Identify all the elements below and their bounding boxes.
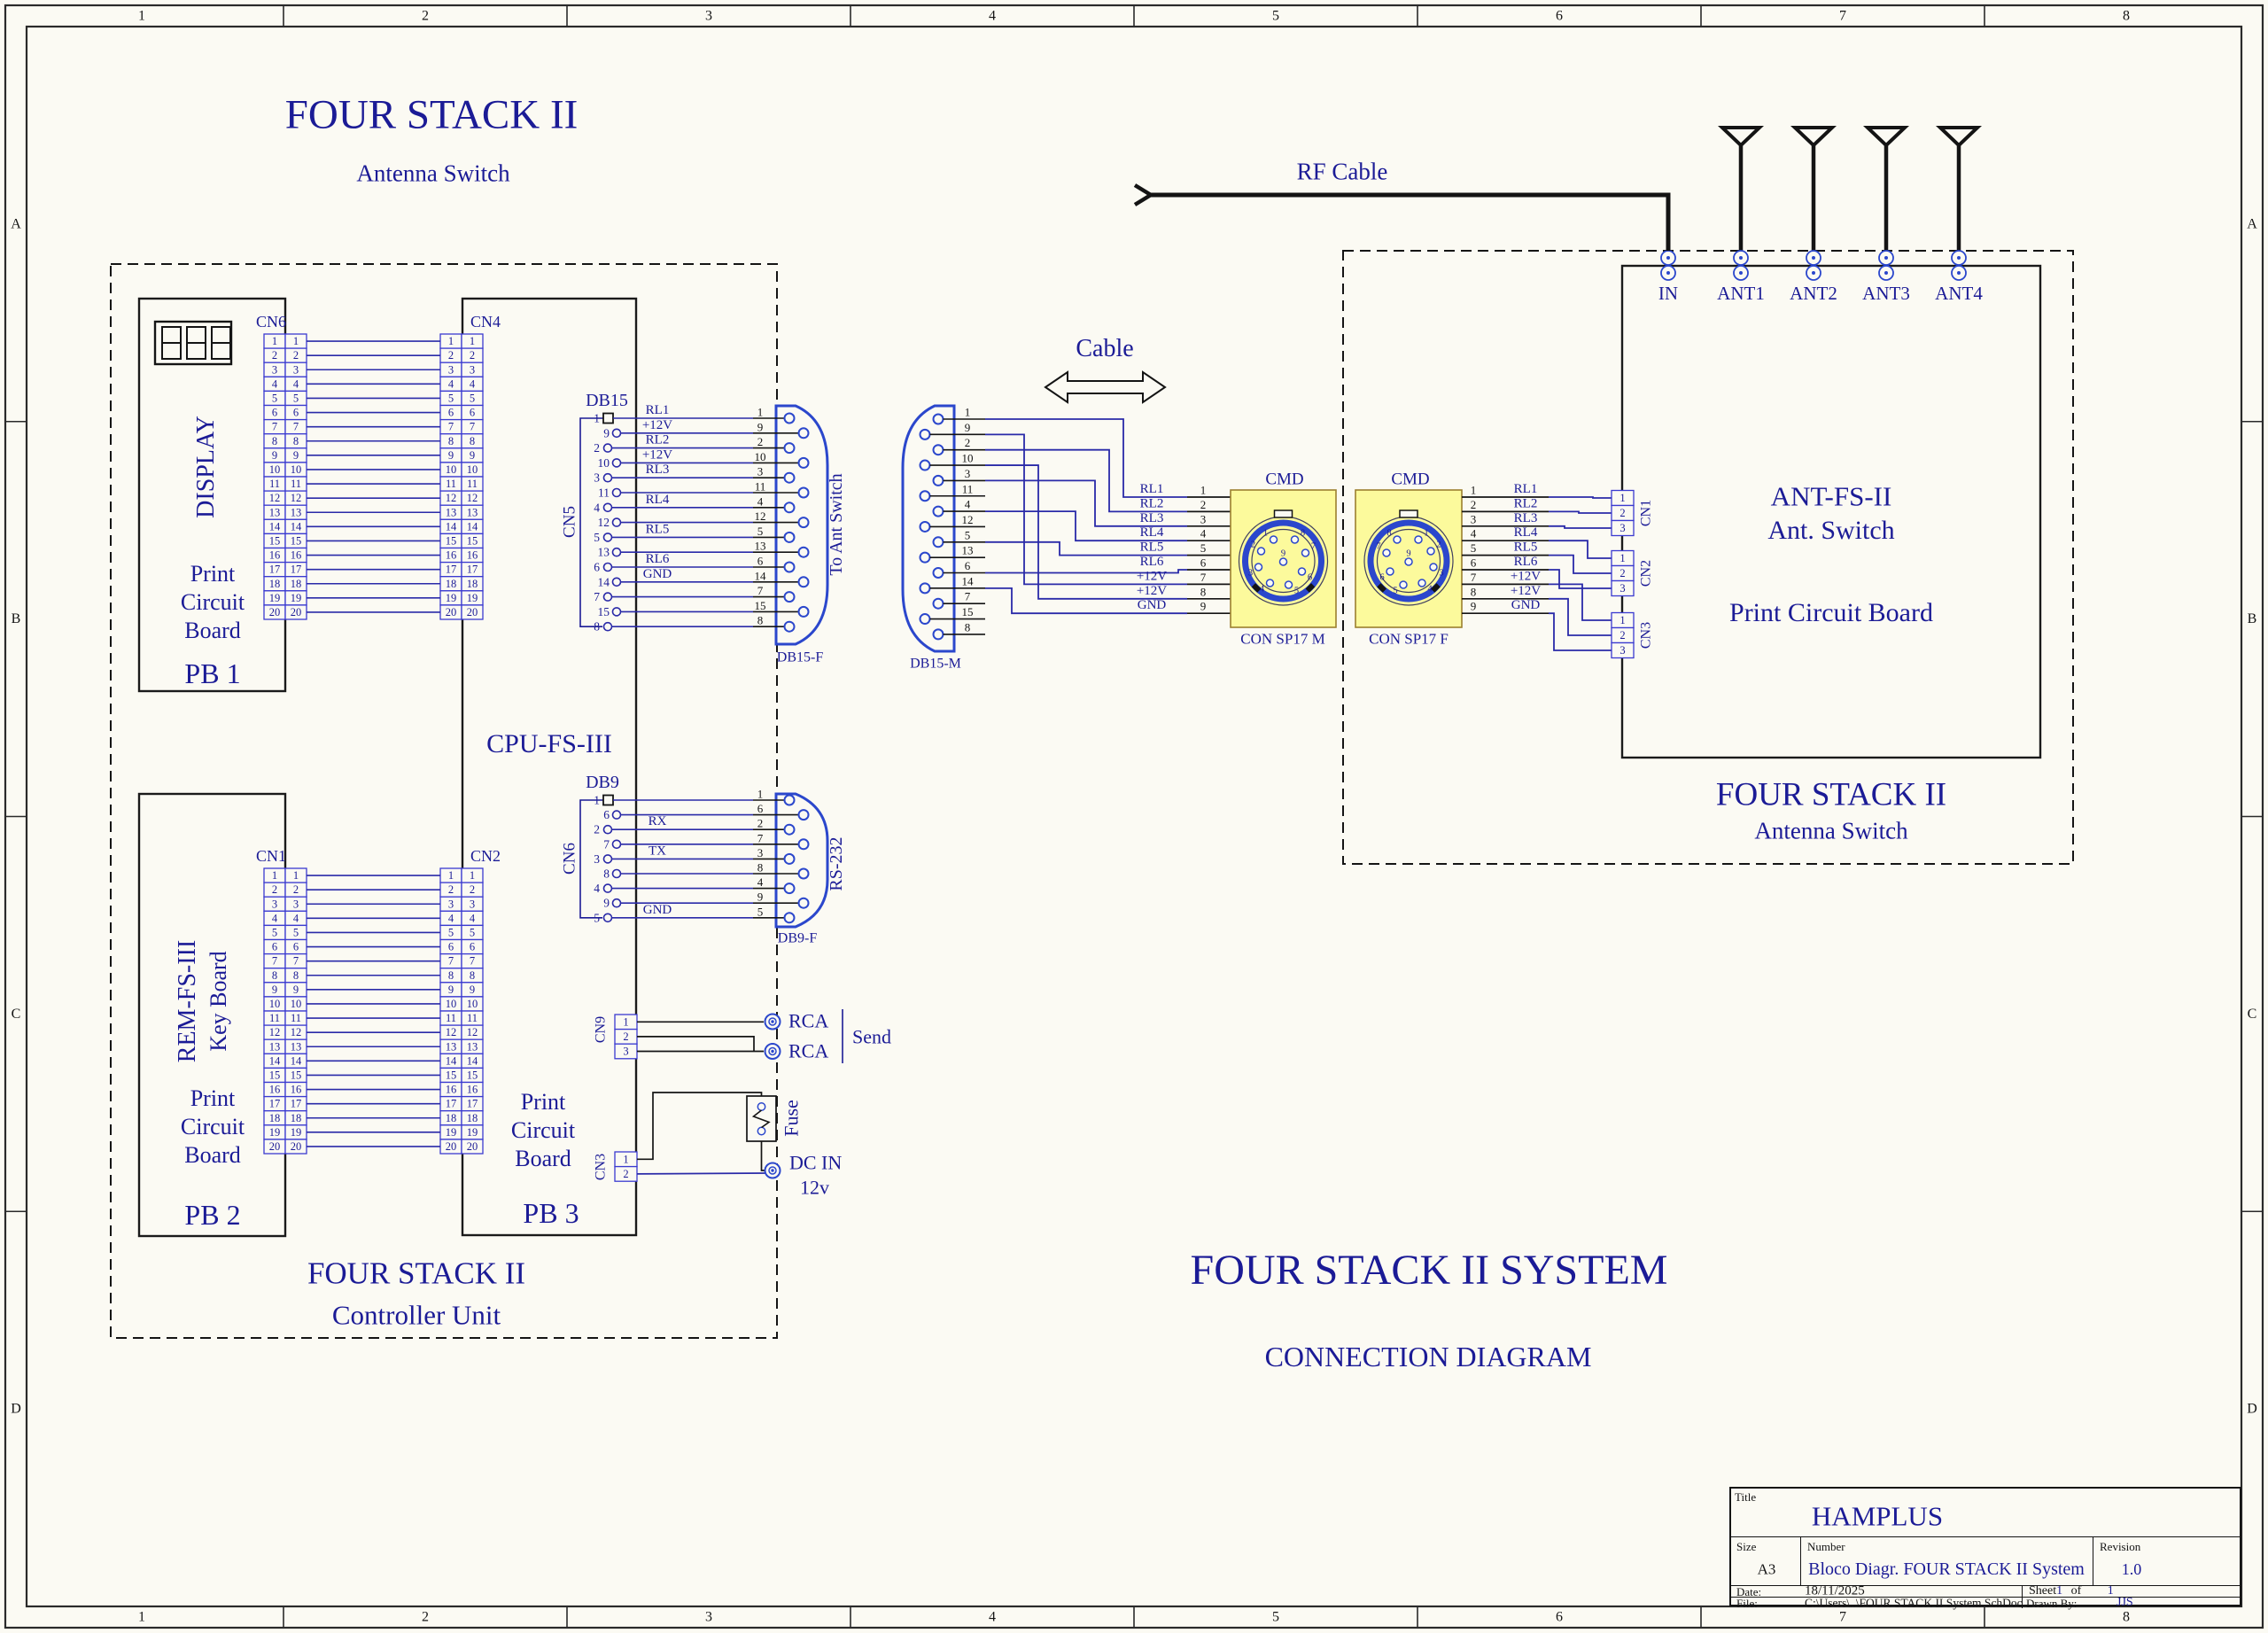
connector-label: CN6	[561, 843, 579, 875]
ant-board-pcb-label: Print Circuit Board	[1729, 600, 1933, 626]
pin-number: 1	[1471, 484, 1477, 497]
pin-number: 19	[446, 592, 457, 604]
pin-number: 1	[757, 788, 764, 801]
system-title: FOUR STACK II SYSTEM	[1191, 1249, 1668, 1292]
pin-number: 2	[293, 349, 299, 362]
sp17-pin-number: 3	[1439, 569, 1443, 579]
sp17-f-notch	[1400, 510, 1417, 517]
pin-number: 2	[1619, 507, 1625, 519]
pin-number: 18	[467, 1112, 478, 1124]
connector-label: CN3	[1639, 622, 1654, 649]
dsub-pin	[934, 537, 944, 547]
dc-in-jack	[772, 1170, 773, 1171]
pin-number: 14	[467, 1054, 478, 1067]
pin-circle	[613, 608, 621, 616]
pin-number: 7	[965, 590, 971, 603]
frame-column-label: 7	[1839, 1610, 1846, 1625]
pin-number: 12	[467, 492, 478, 504]
sp17-pin-number: 6	[1379, 573, 1384, 583]
pin-number: 12	[291, 492, 302, 504]
pin-number: 11	[446, 478, 456, 490]
terminal-label: ANT3	[1862, 283, 1910, 304]
pin-number: 6	[757, 555, 764, 568]
dsub-pin	[920, 461, 930, 470]
pin-number: 17	[291, 1098, 302, 1110]
pin-number: 1	[293, 335, 299, 347]
file-label: File:	[1736, 1597, 1758, 1611]
rca-label: RCA	[788, 1040, 828, 1062]
pin-number: 17	[269, 1098, 281, 1110]
pin-number: 7	[603, 837, 610, 851]
pin-number: 8	[965, 620, 971, 634]
frame-column-label: 6	[1556, 1610, 1563, 1625]
pin-number: 4	[293, 377, 299, 390]
pin-number: 8	[1200, 585, 1207, 598]
dsub-pin	[785, 854, 795, 864]
signal-label: RL4	[646, 493, 670, 507]
pin-number: 1	[965, 406, 971, 419]
sp17-pin	[1415, 536, 1422, 543]
pb2-keyboard-label: Key Board	[207, 951, 230, 1051]
pin-number: 5	[757, 905, 764, 918]
sp17-pin-number: 2	[1251, 540, 1255, 550]
pin-number: 2	[293, 883, 299, 896]
pb3-text-line3: Board	[515, 1147, 571, 1170]
pin-number: 4	[1200, 527, 1207, 540]
pin-number: 2	[623, 1030, 628, 1043]
signal-label: RL4	[1514, 525, 1538, 540]
pin-number: 12	[598, 516, 610, 529]
right-caption-line2: Antenna Switch	[1754, 820, 1907, 844]
pin-circle	[613, 489, 621, 497]
signal-label: GND	[1511, 598, 1541, 612]
sp17-pin-number: 5	[1393, 587, 1397, 596]
pin-number: 9	[272, 449, 277, 462]
pin-number: 20	[467, 1140, 478, 1153]
pin-number: 9	[470, 449, 475, 462]
pin-number: 1	[1619, 492, 1625, 504]
pin-number: 15	[269, 534, 281, 547]
pin-number: 2	[623, 1168, 628, 1180]
sp17-pin	[1430, 564, 1437, 571]
dsub-pin	[934, 629, 944, 639]
pin-circle	[613, 459, 621, 467]
sp17-pin	[1386, 568, 1394, 575]
antenna-icon	[1722, 128, 1759, 145]
pin-number: 13	[446, 1040, 457, 1053]
pin-number: 2	[1200, 498, 1207, 511]
terminal-circle	[1885, 272, 1888, 275]
pin-number: 7	[470, 421, 475, 433]
connector-label: CN4	[470, 313, 501, 330]
pin-number: 14	[269, 1054, 281, 1067]
pin-number: 13	[598, 546, 610, 559]
dsub-pin	[799, 869, 809, 879]
pin-number: 7	[1471, 571, 1477, 584]
pin-number: 5	[594, 911, 600, 924]
pin-number: 14	[446, 1054, 457, 1067]
pin-number: 10	[269, 998, 281, 1010]
send-label: Send	[852, 1026, 891, 1048]
signal-label: +12V	[1511, 569, 1541, 583]
frame-column-label: 4	[989, 1610, 996, 1625]
signal-label: GND	[1138, 598, 1167, 612]
frame-outer-border	[5, 5, 2263, 1628]
pin-number: 8	[293, 969, 299, 982]
pb3-text-line2: Circuit	[511, 1119, 575, 1142]
revision-value: 1.0	[2122, 1561, 2142, 1577]
pin-number: 5	[272, 392, 277, 404]
pin-number: 14	[291, 520, 302, 533]
pin-number: 8	[757, 861, 764, 875]
pin-number: 1	[448, 335, 454, 347]
pin-number: 4	[272, 377, 278, 390]
terminal-circle	[1667, 272, 1670, 275]
pin-number: 3	[272, 898, 277, 910]
pin-number: 9	[448, 449, 454, 462]
pin-number: 14	[446, 520, 457, 533]
pin-number: 15	[467, 534, 478, 547]
pin-number: 4	[293, 912, 299, 924]
rca-label: RCA	[788, 1010, 828, 1032]
size-label: Size	[1736, 1540, 1756, 1554]
signal-label: RL1	[1140, 482, 1164, 496]
pin-number: 2	[448, 349, 454, 362]
pin-number: 5	[293, 392, 299, 404]
pin-number: 9	[965, 421, 971, 434]
frame-column-label: 2	[422, 1610, 429, 1625]
pb2-name: PB 2	[184, 1201, 240, 1229]
sp17-pin-number: 5	[1294, 587, 1299, 596]
pin-number: 4	[470, 912, 476, 924]
pin-circle	[613, 899, 621, 907]
pb1-text-line2: Circuit	[181, 591, 245, 614]
pin-number: 10	[598, 456, 610, 470]
sp17-pin	[1270, 536, 1278, 543]
sp17-pin-number: 7	[1376, 542, 1380, 552]
sp17-pin-number: 7	[1311, 542, 1316, 552]
pin-number: 3	[448, 898, 454, 910]
antenna-icon	[1868, 128, 1905, 145]
pin-number: 15	[755, 599, 766, 612]
frame-column-label: 1	[138, 9, 145, 24]
pin-number: 8	[293, 435, 299, 447]
sp17-pin-number: 4	[1260, 585, 1265, 595]
pin-number: 13	[467, 506, 478, 518]
pin-number: 3	[1200, 512, 1207, 525]
pin-number: 9	[603, 426, 610, 439]
pin-number: 7	[594, 590, 600, 603]
pin-number: 3	[1619, 644, 1625, 657]
pin-number: 4	[757, 875, 764, 889]
pin-number: 18	[269, 578, 281, 590]
size-value: A3	[1758, 1562, 1776, 1577]
pin-number: 20	[446, 606, 457, 618]
pin-circle	[604, 884, 612, 892]
pin-number: 6	[603, 808, 610, 821]
terminal-circle	[1813, 272, 1815, 275]
sp17-pin	[1405, 558, 1412, 565]
pin-circle	[604, 503, 612, 511]
fuse-terminal	[757, 1103, 765, 1110]
pin-number: 4	[594, 501, 600, 514]
pin-number: 19	[467, 592, 478, 604]
pin-number: 11	[962, 482, 974, 495]
cable-label: Cable	[1076, 337, 1133, 362]
sheet-number: 1	[2056, 1584, 2062, 1598]
pin-number: 19	[446, 1126, 457, 1139]
frame-row-label: C	[12, 1007, 21, 1022]
connector-label: CON SP17 M	[1240, 631, 1324, 648]
pin-number: 2	[594, 441, 600, 455]
pin-number: 18	[446, 1112, 457, 1124]
pin-number: 18	[269, 1112, 281, 1124]
pb1-name: PB 1	[184, 659, 240, 688]
connector-label: DB9	[586, 773, 619, 792]
rca-jack	[772, 1050, 773, 1052]
pin-number: 19	[269, 1126, 281, 1139]
dc-in-label: DC IN	[789, 1152, 842, 1174]
pin-number: 15	[962, 605, 974, 618]
pin-number: 1	[470, 335, 475, 347]
pin-number: 10	[291, 463, 302, 476]
sp17-pin	[1383, 549, 1390, 556]
pin-number: 7	[1200, 571, 1207, 584]
cable-double-arrow-icon	[1045, 372, 1165, 402]
dsub-pin	[785, 473, 795, 483]
pb3-text-line1: Print	[521, 1091, 566, 1114]
frame-column-label: 8	[2123, 1610, 2130, 1625]
pb2-text-line2: Circuit	[181, 1116, 245, 1139]
pin-number: 6	[594, 561, 600, 574]
sp17-pin-number: 1	[1424, 529, 1428, 539]
connector-label: DB15	[586, 391, 628, 410]
file-path: C:\Users\..\FOUR STACK II System.SchDoc	[1805, 1597, 2023, 1609]
pin-number: 12	[269, 492, 281, 504]
pin-number: 5	[757, 525, 764, 538]
frame-inner-border	[27, 27, 2241, 1606]
pin-number: 6	[470, 941, 475, 953]
pin-number: 2	[1619, 629, 1625, 642]
pin-number: 12	[291, 1026, 302, 1038]
pin-number: 8	[594, 620, 600, 634]
connector-label: DB15-F	[777, 650, 824, 665]
pin-circle	[613, 548, 621, 556]
dsub-pin	[934, 507, 944, 517]
pin-circle	[604, 533, 612, 541]
pin-number: 16	[467, 1084, 478, 1096]
dsub-pin	[785, 913, 795, 922]
pin-number: 6	[448, 941, 454, 953]
sp17-pin-number: 8	[1301, 529, 1305, 539]
schematic-drawing: 1122334455667788AABBCCDD1111222233334444…	[0, 0, 2268, 1633]
pin-number: 7	[272, 955, 277, 968]
pin-number: 17	[467, 1098, 478, 1110]
connector-label: CN2	[1639, 560, 1654, 587]
dsub-pin	[785, 796, 795, 805]
number-value: Bloco Diagr. FOUR STACK II System	[1808, 1560, 2085, 1578]
dsub-pin	[920, 430, 930, 439]
wire	[637, 1093, 762, 1159]
dsub-pin	[799, 607, 809, 617]
connector-label: CN2	[470, 847, 501, 865]
pin-number: 14	[467, 520, 478, 533]
sp17-pin-number: 6	[1308, 573, 1312, 583]
pin-circle	[604, 826, 612, 834]
pin-number: 8	[272, 969, 277, 982]
pin-number: 9	[1200, 600, 1207, 613]
pin-one-square	[603, 796, 613, 805]
signal-label: RL6	[1140, 555, 1164, 569]
pin-circle	[613, 811, 621, 819]
pin-number: 11	[467, 478, 478, 490]
pin-number: 3	[293, 363, 299, 376]
dsub-pin	[799, 898, 809, 908]
cable-wire	[1549, 584, 1612, 620]
signal-label: RL2	[646, 433, 670, 447]
pin-number: 15	[291, 534, 302, 547]
pin-number: 5	[293, 926, 299, 938]
dsub-pin	[785, 592, 795, 602]
pb2-text-line3: Board	[184, 1144, 241, 1167]
sheet-of-label: of	[2071, 1584, 2082, 1598]
pin-number: 1	[470, 869, 475, 882]
dc-in-label: 12v	[800, 1177, 829, 1199]
pin-number: 9	[448, 984, 454, 996]
pin-one-square	[603, 414, 613, 424]
pin-number: 12	[755, 509, 766, 523]
pin-number: 8	[272, 435, 277, 447]
pin-number: 9	[470, 984, 475, 996]
pin-number: 1	[272, 869, 277, 882]
signal-label: RL5	[646, 522, 670, 536]
connector-label: CN6	[256, 313, 286, 330]
title-block: Title HAMPLUS Size A3 Number Bloco Diagr…	[1729, 1487, 2241, 1606]
pin-number: 16	[467, 549, 478, 562]
pin-number: 5	[448, 926, 454, 938]
pin-number: 2	[272, 883, 277, 896]
pin-number: 13	[291, 1040, 302, 1053]
pb1-display-label: DISPLAY	[194, 416, 219, 518]
dsub-pin	[799, 810, 809, 820]
ant-board-subtitle: Ant. Switch	[1767, 517, 1894, 544]
pin-circle	[613, 870, 621, 878]
signal-label: RL6	[1514, 555, 1538, 569]
pin-number: 16	[446, 1084, 457, 1096]
pin-number: 20	[291, 1140, 302, 1153]
pin-number: 9	[757, 890, 764, 904]
title-block-divider	[1731, 1536, 2240, 1537]
frame-column-label: 7	[1839, 9, 1846, 24]
fuse-label: Fuse	[781, 1100, 803, 1137]
pin-number: 11	[755, 480, 766, 494]
pin-number: 16	[291, 1084, 302, 1096]
pin-number: 15	[269, 1069, 281, 1081]
title-label: Title	[1735, 1490, 1756, 1505]
shell-note: To Ant Switch	[827, 473, 846, 575]
frame-column-label: 5	[1272, 9, 1279, 24]
pin-number: 13	[269, 1040, 281, 1053]
controller-caption-line1: FOUR STACK II	[307, 1258, 525, 1289]
pin-number: 13	[755, 540, 766, 553]
sp17-pin	[1258, 548, 1265, 555]
pin-number: 18	[291, 578, 302, 590]
pin-number: 2	[965, 436, 971, 449]
pin-number: 1	[293, 869, 299, 882]
rf-cable-end	[1135, 195, 1151, 205]
pin-number: 1	[594, 794, 600, 807]
pin-number: 7	[470, 955, 475, 968]
signal-label: RL5	[1514, 540, 1538, 555]
pin-number: 8	[470, 435, 475, 447]
pin-number: 7	[293, 421, 299, 433]
pin-number: 20	[467, 606, 478, 618]
pin-number: 14	[598, 575, 610, 588]
sp17-pin	[1418, 579, 1425, 587]
pin-number: 6	[1471, 556, 1477, 570]
pin-number: 13	[269, 506, 281, 518]
signal-label: +12V	[642, 418, 672, 432]
sp17-pin-number: 9	[1406, 549, 1410, 559]
pin-number: 15	[446, 1069, 457, 1081]
sp17-pin	[1285, 581, 1293, 588]
pin-number: 1	[1619, 614, 1625, 626]
pin-number: 1	[1619, 552, 1625, 564]
pin-number: 1	[594, 412, 600, 425]
connector-label: CN1	[1639, 500, 1654, 526]
pin-number: 1	[448, 869, 454, 882]
cable-wire	[1549, 613, 1612, 650]
pin-number: 13	[291, 506, 302, 518]
pin-number: 20	[269, 606, 281, 618]
sp17-pin	[1394, 536, 1401, 543]
pin-number: 2	[594, 823, 600, 836]
dsub-pin	[799, 577, 809, 587]
dsub-pin	[785, 563, 795, 572]
pin-number: 10	[291, 998, 302, 1010]
sp17-pin	[1255, 564, 1262, 571]
terminal-circle	[1813, 257, 1815, 260]
dsub-pin	[799, 458, 809, 468]
pin-circle	[613, 518, 621, 526]
pin-number: 15	[291, 1069, 302, 1081]
dsub-pin	[785, 825, 795, 835]
cable-wire	[1549, 526, 1612, 528]
pin-number: 8	[470, 969, 475, 982]
title-block-divider	[2093, 1536, 2093, 1585]
sp17-pin-number: 9	[1281, 549, 1285, 559]
pb1-text-line3: Board	[184, 619, 241, 642]
pin-number: 2	[1619, 567, 1625, 579]
pin-number: 9	[603, 897, 610, 910]
terminal-label: ANT2	[1790, 283, 1837, 304]
pin-number: 10	[755, 450, 766, 463]
pin-number: 9	[293, 984, 299, 996]
pin-number: 3	[965, 467, 971, 480]
connector-label: DB15-M	[910, 657, 961, 672]
signal-label: +12V	[1137, 569, 1167, 583]
pin-number: 19	[269, 592, 281, 604]
pin-number: 16	[269, 549, 281, 562]
pin-number: 17	[269, 564, 281, 576]
pin-number: 19	[291, 1126, 302, 1139]
pin-number: 11	[446, 1012, 456, 1024]
right-caption-line1: FOUR STACK II	[1716, 779, 1946, 812]
frame-column-label: 8	[2123, 9, 2130, 24]
sp17-pin	[1302, 549, 1309, 556]
terminal-label: ANT1	[1717, 283, 1765, 304]
frame-row-label: B	[12, 611, 21, 626]
